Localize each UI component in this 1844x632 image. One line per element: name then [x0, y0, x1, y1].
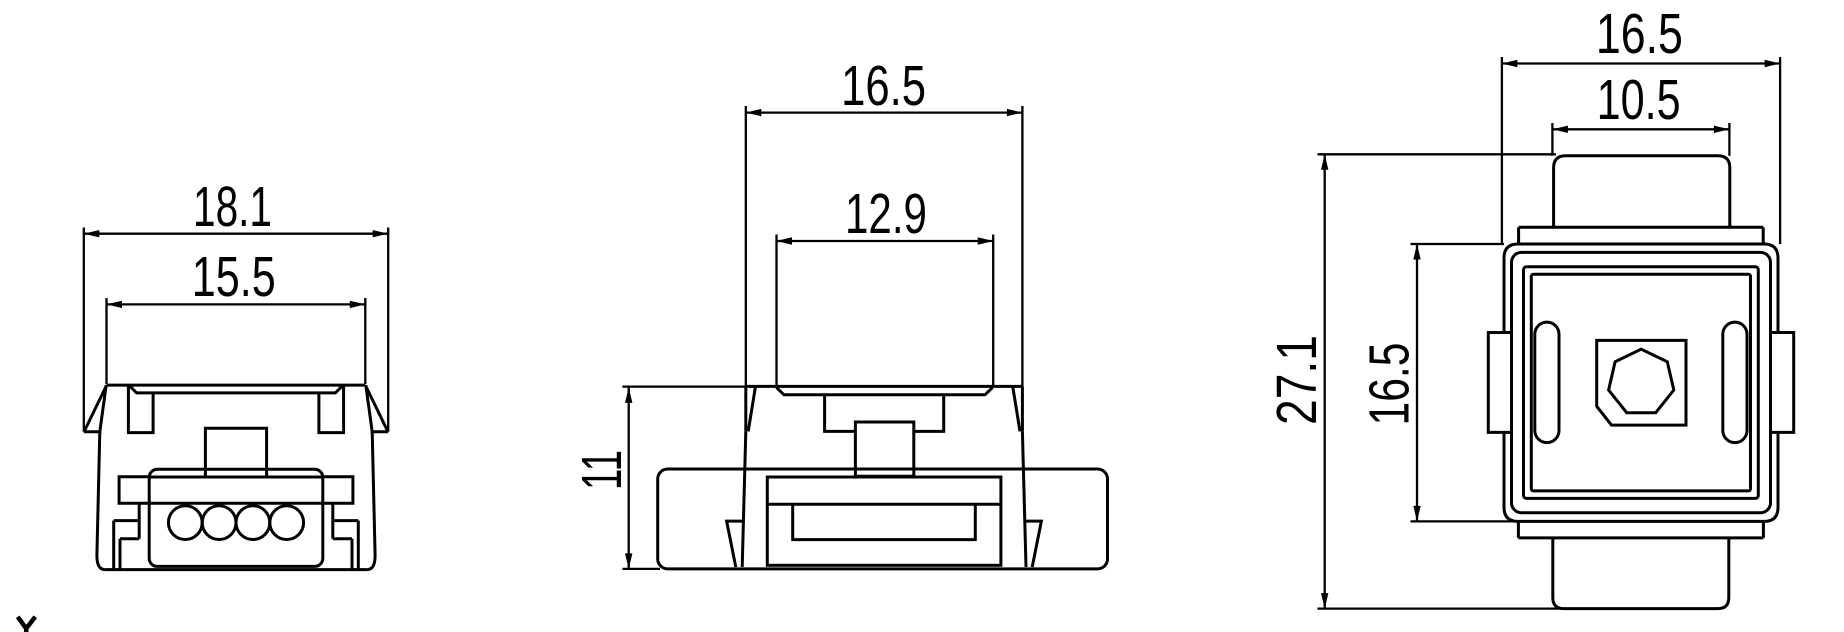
svg-text:16.5: 16.5 — [841, 54, 926, 118]
svg-text:16.5: 16.5 — [1596, 2, 1683, 66]
svg-text:11: 11 — [570, 450, 634, 490]
svg-text:10.5: 10.5 — [1597, 68, 1681, 132]
svg-text:27.1: 27.1 — [1265, 335, 1329, 425]
svg-text:16.5: 16.5 — [1358, 343, 1422, 426]
svg-text:18.1: 18.1 — [193, 175, 272, 239]
svg-text:15.5: 15.5 — [192, 245, 276, 309]
svg-text:12.9: 12.9 — [845, 182, 927, 246]
